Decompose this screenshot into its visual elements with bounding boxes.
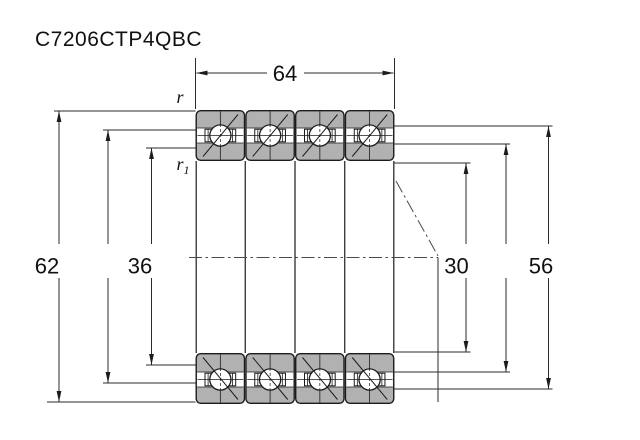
bearing-unit-bottom-1 [196,354,244,404]
part-number-title: C7206CTP4QBC [35,28,202,51]
dim-label-62: 62 [35,254,59,279]
bearing-drawing-page: C7206CTP4QBC 64 62 [0,0,640,440]
corner-radius-label-r1: r1 [176,154,189,177]
dimension-outer-62: 62 [35,111,196,402]
bearing-unit-top-1 [196,111,244,161]
bearing-unit-top-4 [345,111,393,161]
bearing-unit-bottom-4 [345,354,393,404]
dim-label-36: 36 [128,254,152,279]
dim-label-30: 30 [444,254,468,279]
corner-radius-label-r: r [176,87,184,107]
bearing-unit-bottom-2 [246,354,294,404]
dim-label-56: 56 [529,254,553,279]
bearing-unit-top-3 [296,111,344,161]
dimension-width-64: 64 [196,58,395,109]
bearing-unit-bottom-3 [296,354,344,404]
bearing-unit-top-2 [246,111,294,161]
dimension-shoulder-36: 36 [128,148,196,365]
bearing-drawing: C7206CTP4QBC 64 62 [0,0,640,440]
dim-label-64: 64 [273,61,297,86]
bore-leader-diagonal [396,181,438,256]
